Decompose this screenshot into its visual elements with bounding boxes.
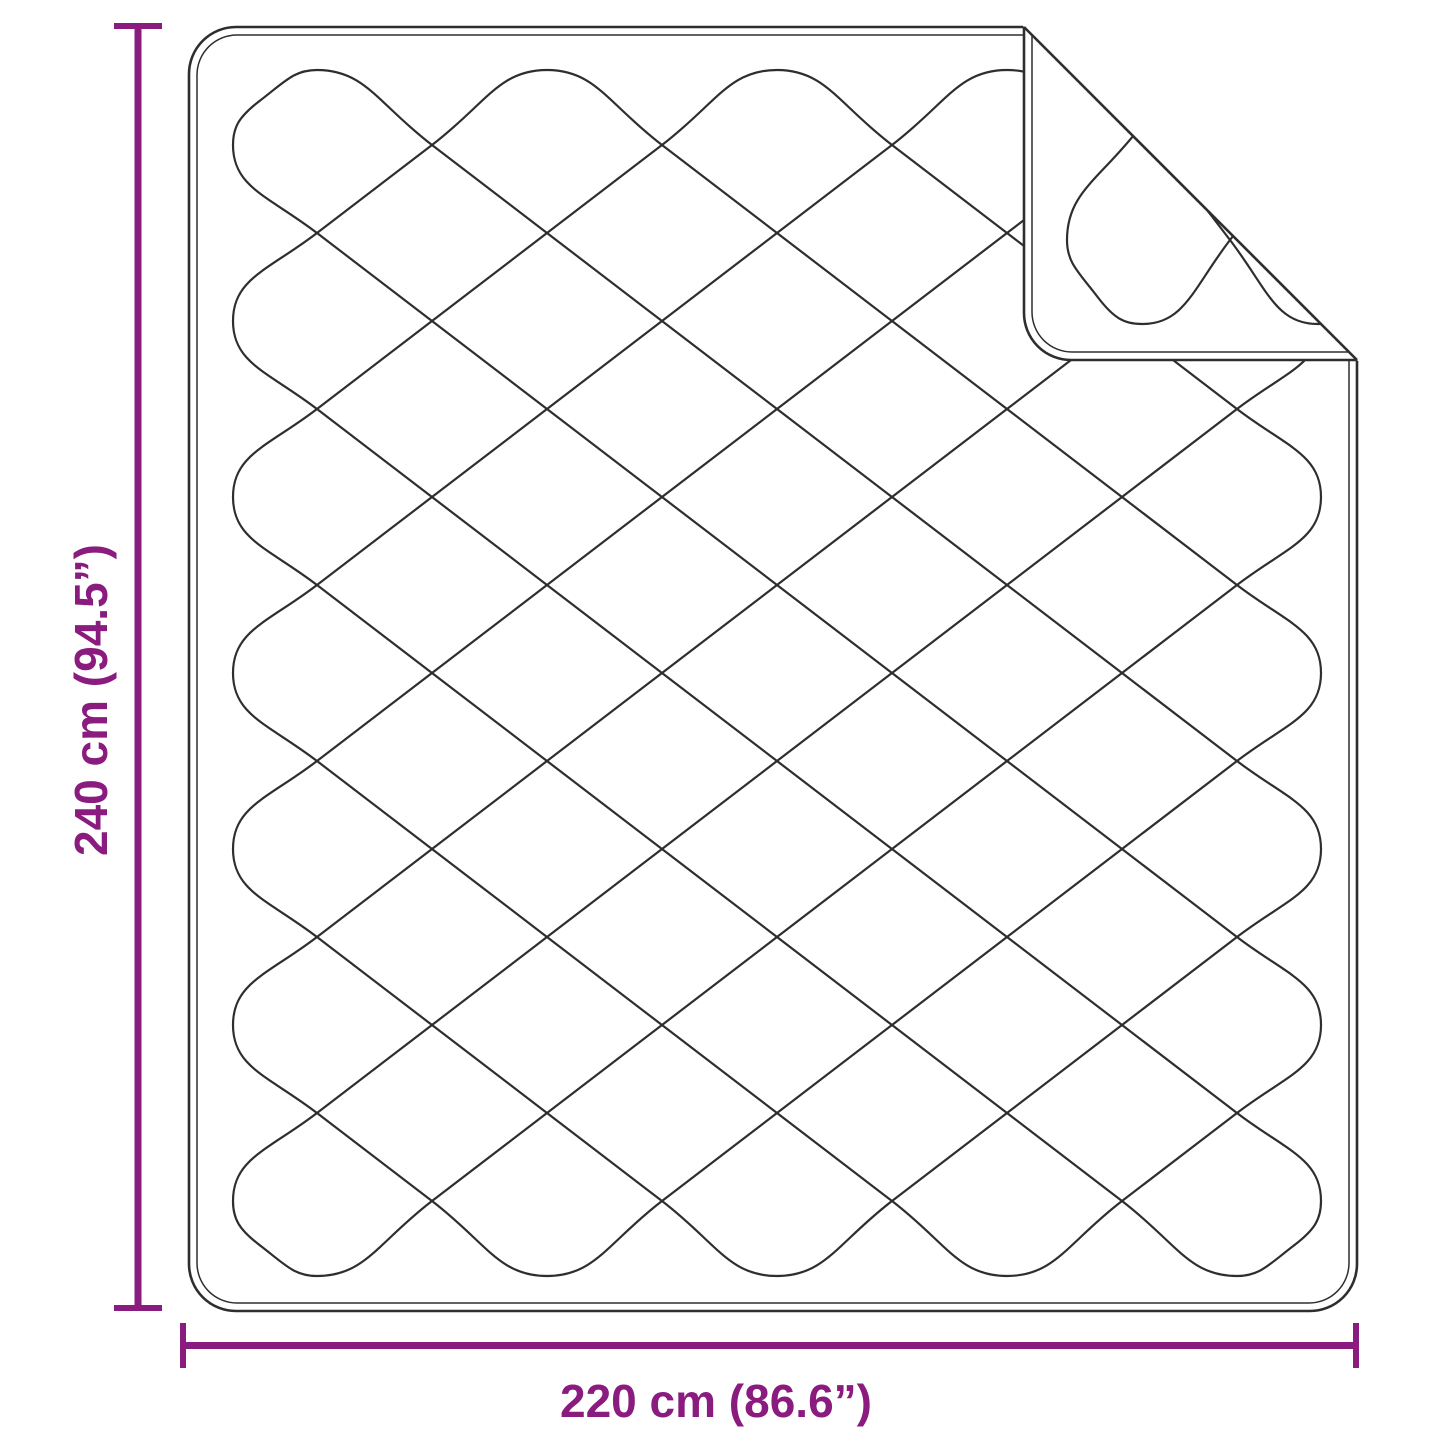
vertical-dimension: 240 cm (94.5”) [65,23,162,1311]
quilt-stitch-line [1007,409,1122,497]
quilt-stitch-line [432,849,547,937]
quilt-stitch-line [547,497,662,585]
quilt-stitch-line [892,761,1007,849]
quilt-stitch-line [233,585,317,761]
quilt-stitch-line [662,937,777,1025]
quilt-stitch-line [777,233,892,321]
quilt-stitch-line [662,321,777,409]
horizontal-dimension-label: 220 cm (86.6”) [560,1375,872,1427]
quilt-stitch-line [432,409,547,497]
quilt-stitch-line [1142,0,1230,10]
quilt-stitch-line [1237,409,1321,585]
quilt-stitch-line [662,585,777,673]
quilt-stitch-line [432,233,547,321]
quilt-stitch-line [260,1201,433,1276]
quilt-stitch-line [1122,409,1237,497]
quilt-stitch-line [432,321,547,409]
quilt-stitch-line [317,145,432,233]
quilt-stitch-line [317,761,432,849]
quilt-stitch-line [1122,937,1237,1025]
quilt-stitch-line [1237,233,1321,409]
quilt-stitch-line [1122,497,1237,585]
quilt-stitch-line [662,409,777,497]
quilt-stitch-line [892,409,1007,497]
quilt-stitch-line [317,585,432,673]
quilt-stitch-line [1230,0,1318,10]
quilt-stitch-line [1318,0,1406,10]
quilt-stitch-line [197,35,1349,1303]
quilt-stitch-line [1122,585,1237,673]
quilt-stitch-line [1098,240,1230,324]
quilt-stitch-line [432,497,547,585]
quilt-stitch-line [1122,1025,1237,1113]
quilt-stitch-line [1122,233,1237,321]
quilt-stitch-line [777,849,892,937]
quilt-stitch-line [1122,849,1237,937]
quilt-stitch-line [547,409,662,497]
quilt-stitch-line [777,761,892,849]
vertical-dimension-label: 240 cm (94.5”) [65,544,117,856]
quilt-stitch-line [432,1025,547,1113]
quilt-stitch-line [317,937,432,1025]
quilt-stitch-line [777,145,892,233]
quilt-stitch-line [892,70,1122,145]
quilt-stitch-line [892,585,1007,673]
quilt-stitch-line [1007,761,1122,849]
quilt-stitch-line [1122,673,1237,761]
quilt-stitch-line [317,1025,432,1113]
quilt-stitch-line [317,849,432,937]
quilt-stitch-line [892,849,1007,937]
quilt-stitch-line [892,673,1007,761]
quilt-stitch-line [1032,0,1445,352]
quilt-stitch-line [777,497,892,585]
quilt-stitch-line [777,585,892,673]
quilt-stitch-line [1230,240,1406,324]
quilt-stitch-line [662,70,892,145]
quilt-stitch-line [892,145,1007,233]
horizontal-dimension-right-cap [1353,1323,1359,1368]
quilt-stitch-line [662,1201,892,1276]
quilt-stitch-line [892,233,1007,321]
quilt-stitch-line [547,1113,662,1201]
quilt-stitch-line [1318,125,1406,240]
quilt-stitch-line [547,849,662,937]
quilt-stitch-line [432,673,547,761]
vertical-dimension-line [135,26,142,1308]
quilt-stitch-line [547,585,662,673]
quilt-stitch-line [317,1113,432,1201]
quilt-stitch-line [892,321,1007,409]
quilt-stitch-line [1406,10,1445,125]
quilt-stitch-line [233,409,317,585]
quilt-stitch-line [432,1201,662,1276]
quilt-stitch-line [1122,70,1295,145]
quilt-stitch-line [777,321,892,409]
quilt-stitch-line [662,145,777,233]
quilt-stitch-line [432,585,547,673]
quilt-stitch-line [892,1201,1122,1276]
quilt-stitch-line [777,937,892,1025]
quilt-stitch-line [1237,761,1321,937]
quilt-stitch-line [662,673,777,761]
quilt-stitch-line [317,673,432,761]
quilt-stitch-line [777,1025,892,1113]
quilt-stitch-line [189,27,1357,1311]
horizontal-dimension-left-cap [180,1323,186,1368]
quilt-stitch-line [317,233,432,321]
quilt-stitch-line [777,1113,892,1201]
quilt-stitch-line [777,673,892,761]
quilt-stitch-line [1230,125,1318,240]
quilt-stitch-line [233,937,317,1113]
quilt-stitch-line [1007,1025,1122,1113]
quilt-stitch-line [892,1025,1007,1113]
quilt-stitch-line [662,761,777,849]
quilt-stitch-line [1122,761,1237,849]
quilt-stitch-line [547,1025,662,1113]
quilt-stitch-line [1007,673,1122,761]
quilt-stitch-line [1067,125,1142,298]
horizontal-dimension-line [183,1342,1356,1349]
horizontal-dimension: 220 cm (86.6”) [180,1323,1359,1427]
quilt-stitch-line [777,409,892,497]
quilt-stitch-line [1142,10,1230,125]
vertical-dimension-top-cap [114,23,162,29]
quilt-stitch-line [1007,321,1122,409]
quilt-stitch-line [1230,10,1318,125]
quilt-stitch-line [1024,0,1445,360]
quilt-stitch-line [1122,321,1237,409]
quilt-stitch-line [1237,1113,1321,1245]
quilt-stitch-line [233,101,317,233]
quilt-stitch-line [260,70,433,145]
quilt-stitch-line [317,409,432,497]
quilt-stitch-line [317,321,432,409]
quilt-stitch-line [892,1113,1007,1201]
quilt-stitch-line [547,673,662,761]
quilt-stitch-line [432,937,547,1025]
fold-crease-line [1024,27,1357,360]
quilt-stitch-line [1406,125,1445,240]
vertical-dimension-bottom-cap [114,1305,162,1311]
quilt-stitch-line [547,145,662,233]
quilt-stitch-line [1406,240,1445,324]
quilt-stitch-line [1122,145,1237,233]
quilt-stitch-line [547,321,662,409]
quilt-stitch-line [1237,937,1321,1113]
quilt-stitch-line [317,497,432,585]
quilt-stitch-line [1007,1113,1122,1201]
quilt-stitch-line [1318,10,1406,125]
quilt-stitch-line [1122,1201,1295,1276]
quilt-stitch-line [547,937,662,1025]
quilt-stitch-line [233,1113,317,1245]
quilt-stitch-line [662,1025,777,1113]
quilt-stitch-line [662,233,777,321]
quilt-stitch-line [432,70,662,145]
quilt-stitch-line [432,145,547,233]
blanket-dimension-diagram: 240 cm (94.5”) 220 cm (86.6”) [0,0,1445,1445]
folded-corner-flap [1024,0,1445,360]
quilt-stitch-line [1406,0,1445,10]
quilt-stitch-line [892,937,1007,1025]
quilt-stitch-line [1007,937,1122,1025]
quilt-stitch-line [1007,497,1122,585]
quilt-stitch-line [547,761,662,849]
quilt-stitch-line [1007,585,1122,673]
quilt-stitch-line [892,497,1007,585]
quilt-stitch-line [432,1113,547,1201]
quilt-stitch-line [432,761,547,849]
quilt-stitch-line [662,497,777,585]
quilt-stitch-line [233,761,317,937]
quilt-stitch-line [233,233,317,409]
diagram-stage: 240 cm (94.5”) 220 cm (86.6”) [0,0,1445,1445]
quilt-stitch-line [1237,585,1321,761]
quilt-stitch-line [662,1113,777,1201]
quilt-stitch-line [1142,125,1230,240]
quilt-stitch-line [662,849,777,937]
quilt-stitch-line [1007,849,1122,937]
quilt-stitch-line [1237,101,1321,233]
quilt-stitch-line [547,233,662,321]
blanket-body [189,27,1357,1311]
quilt-stitch-line [1122,1113,1237,1201]
